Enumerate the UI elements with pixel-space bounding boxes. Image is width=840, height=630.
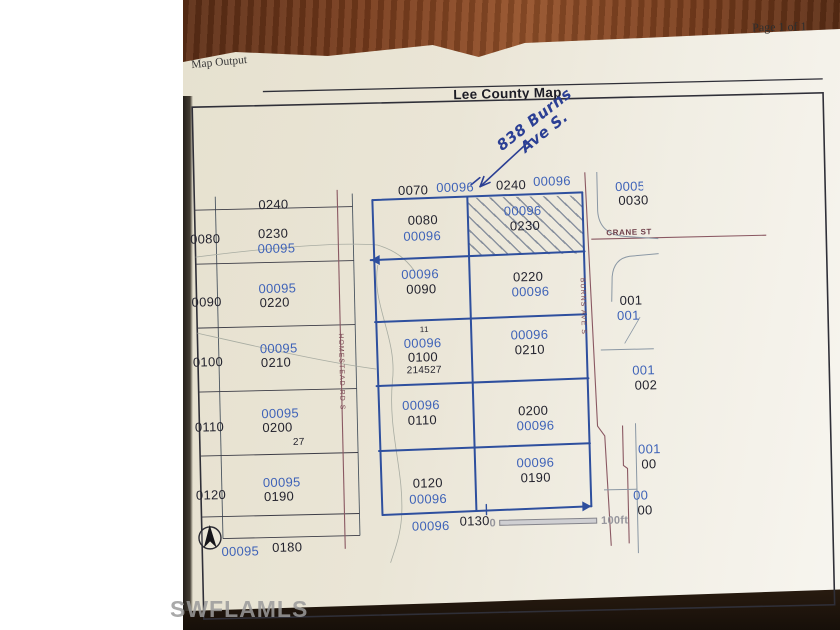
map-linework [183, 0, 840, 630]
parcel-label: 0005 [615, 179, 643, 193]
parcel-label: 002 [634, 378, 659, 392]
parcel-label: 00096 [404, 336, 442, 350]
parcel-id-label: 0100 [193, 355, 223, 369]
lot-number-label: 27 [293, 438, 305, 448]
street-label-burns: BURNS AVE S [579, 278, 587, 335]
parcel-label: 0100 [408, 350, 438, 364]
parcel-label: 0240 [258, 198, 288, 212]
parcel-label: 0180 [272, 540, 302, 554]
screenshot: Map Output Page 1 of 1 Lee County Map [0, 0, 840, 630]
parcel-label: 0080 [408, 213, 438, 227]
parcel-label: 00096 [533, 174, 571, 188]
watermark: SWFLAMLS [170, 596, 308, 623]
parcel-label: 00096 [504, 204, 542, 218]
parcel-label: 00095 [263, 475, 301, 489]
scale-bar [500, 518, 597, 525]
faint-boundary-curves [195, 243, 420, 567]
parcel-label: 0200 [518, 404, 548, 418]
parcel-label: 00095 [221, 544, 259, 558]
parcel-label: 001 [620, 293, 645, 307]
parcel-label: 0230 [258, 227, 288, 241]
parcel-label: 0090 [406, 282, 436, 296]
parcel-label: 0120 [413, 476, 443, 490]
parcel-label: 00096 [403, 229, 441, 243]
parcel-label: 0230 [510, 219, 540, 233]
parcel-label: 00096 [510, 328, 548, 342]
parcel-label: 0070 [398, 183, 428, 197]
parcel-label: 00095 [258, 281, 296, 295]
parcel-label: 00096 [409, 492, 447, 506]
parcel-label: 00095 [257, 241, 295, 255]
photo-of-paper: Map Output Page 1 of 1 Lee County Map [183, 0, 840, 630]
scale-max-label: 100ft [601, 514, 628, 527]
parcel-label: 00096 [436, 180, 474, 194]
parcel-label: 00096 [401, 267, 439, 281]
parcel-label: 0190 [520, 471, 550, 485]
parcel-id-label: 0090 [191, 295, 221, 309]
parcel-label: 00096 [402, 398, 440, 412]
parcel-label: 00 [637, 503, 652, 516]
parcel-label: 0130 [459, 514, 489, 528]
parcel-label: 00 [641, 457, 660, 470]
parcel-label: 001 [632, 363, 657, 377]
road-lines [337, 168, 773, 552]
parcel-label: 001 [617, 309, 642, 323]
parcel-id-label: 0110 [195, 420, 224, 434]
parcel-label: 00095 [261, 406, 299, 420]
parcel-label: 0110 [408, 413, 437, 427]
parcel-label: 001 [638, 442, 660, 455]
parcel-label: 00 [633, 488, 650, 501]
parcel-label: 00096 [512, 285, 550, 299]
street-label-crane: CRANE ST [606, 227, 652, 237]
parcel-label: 00096 [412, 519, 450, 533]
parcel-label: 0210 [515, 343, 545, 357]
parcel-id-label: 0080 [190, 232, 220, 246]
parcel-label: 0190 [264, 489, 294, 503]
lot-number-label: 11 [420, 326, 429, 334]
strap-number-label: 214527 [407, 366, 442, 377]
parcel-label: 0200 [262, 420, 292, 434]
parcel-label: 0220 [513, 270, 543, 284]
parcel-label: 0210 [261, 356, 291, 370]
parcel-label: 00096 [516, 456, 554, 470]
map-document: Map Output Page 1 of 1 Lee County Map [183, 0, 840, 630]
scale-zero-label: 0 [489, 517, 496, 529]
parcel-label: 0240 [496, 178, 526, 192]
parcel-label: 0030 [618, 193, 648, 207]
parcel-label: 00095 [260, 341, 298, 355]
parcel-label: 00096 [517, 419, 555, 433]
parcel-id-label: 0120 [196, 488, 226, 502]
parcel-label: 0220 [259, 296, 289, 310]
